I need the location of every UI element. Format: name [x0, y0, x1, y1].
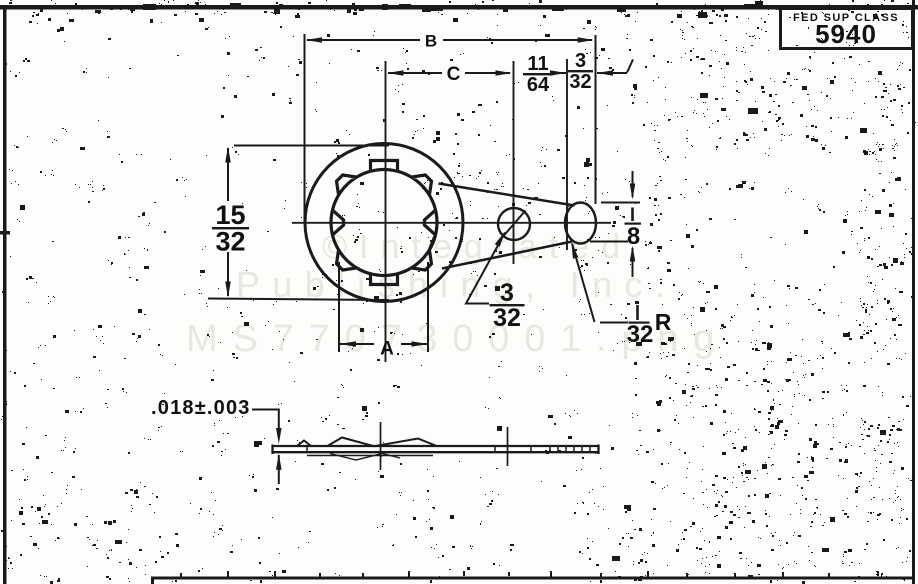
svg-text:B: B: [425, 32, 437, 51]
svg-text:11: 11: [527, 53, 548, 75]
svg-text:.018±.003: .018±.003: [151, 397, 251, 419]
svg-text:3: 3: [575, 50, 586, 72]
svg-text:32: 32: [569, 71, 591, 93]
svg-text:A: A: [380, 339, 394, 360]
svg-text:32: 32: [215, 227, 245, 257]
svg-text:C: C: [447, 64, 461, 85]
svg-text:32: 32: [627, 321, 654, 348]
svg-text:5940: 5940: [815, 19, 877, 49]
svg-text:15: 15: [215, 200, 245, 230]
svg-text:64: 64: [527, 74, 550, 96]
svg-text:8: 8: [627, 223, 640, 250]
svg-text:32: 32: [493, 304, 521, 332]
svg-text:R: R: [655, 309, 672, 335]
svg-text:3: 3: [500, 279, 514, 307]
